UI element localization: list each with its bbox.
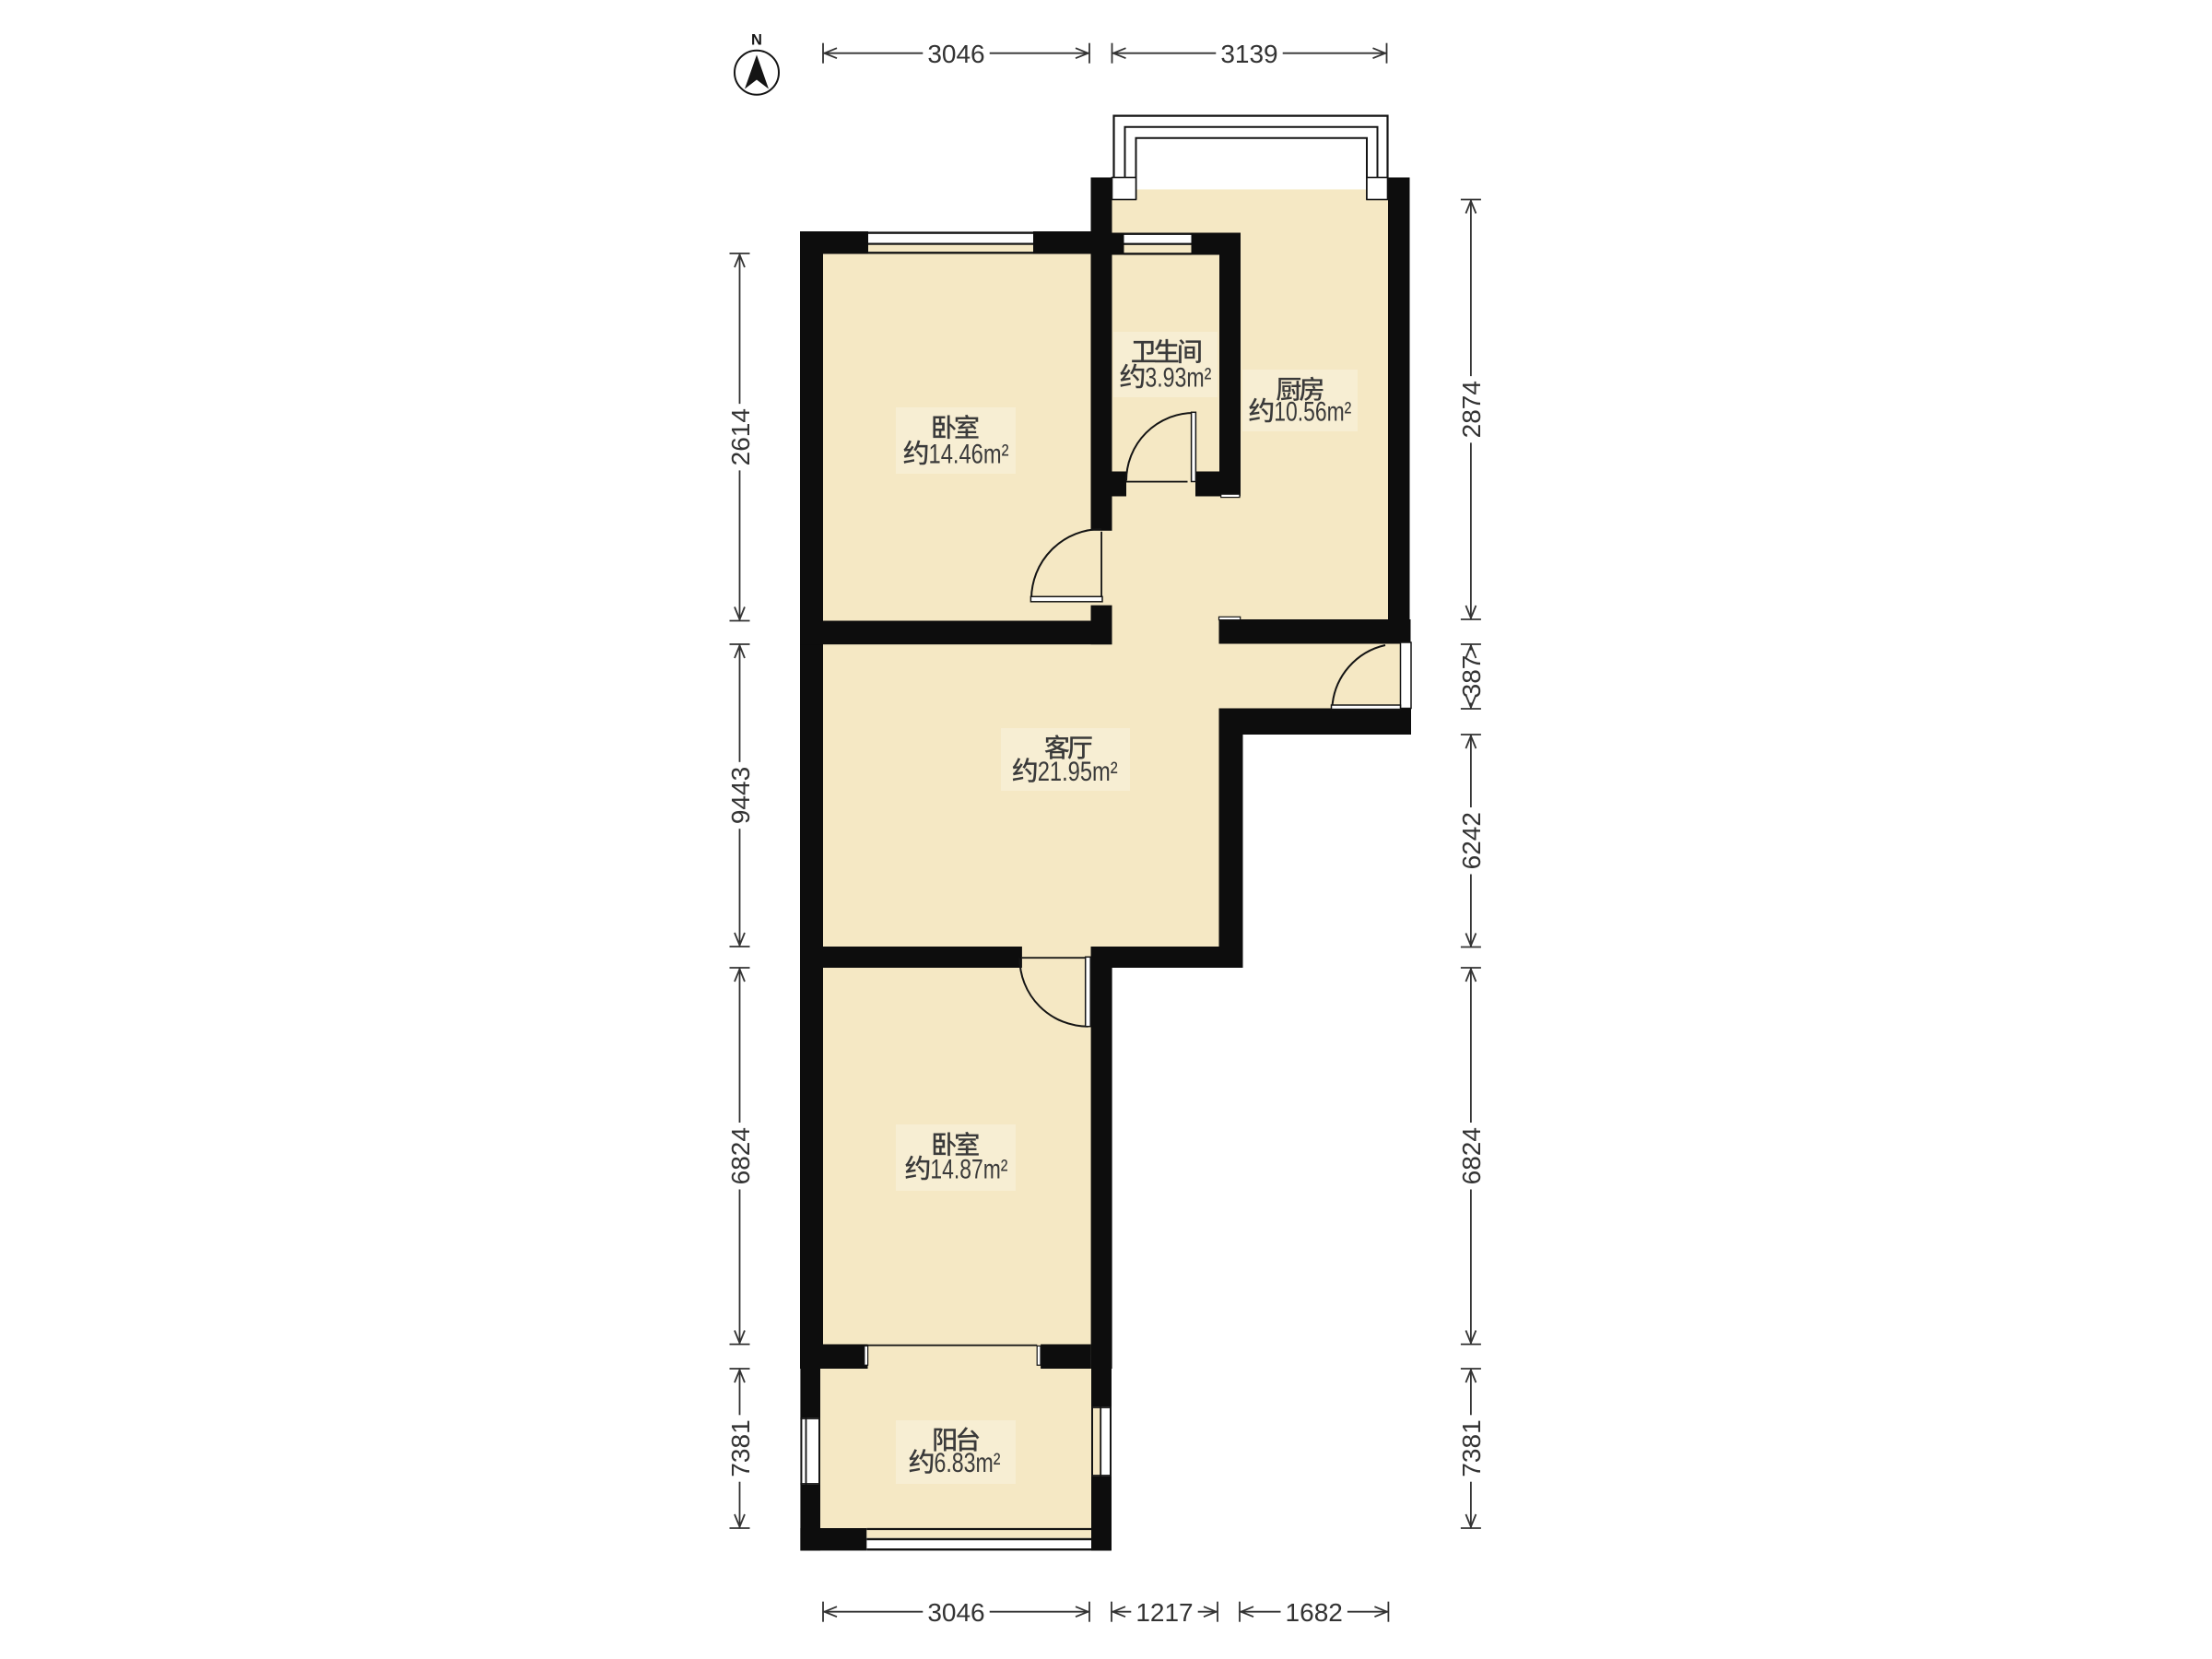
svg-text:7381: 7381: [1457, 1419, 1486, 1477]
svg-text:2614: 2614: [726, 408, 755, 465]
svg-text:9443: 9443: [726, 767, 755, 824]
svg-text:1217: 1217: [1135, 1598, 1193, 1627]
svg-text:3046: 3046: [927, 1598, 984, 1627]
svg-text:6824: 6824: [726, 1127, 755, 1184]
svg-text:6824: 6824: [1457, 1127, 1486, 1184]
svg-text:7381: 7381: [726, 1419, 755, 1477]
svg-text:N: N: [751, 32, 762, 49]
svg-text:3.93m²: 3.93m²: [1145, 363, 1211, 394]
svg-text:387: 387: [1457, 655, 1486, 699]
svg-text:6242: 6242: [1457, 812, 1486, 869]
svg-text:21.95m²: 21.95m²: [1038, 757, 1118, 787]
svg-text:14.46m²: 14.46m²: [929, 440, 1009, 470]
svg-text:6.83m²: 6.83m²: [935, 1448, 1001, 1478]
svg-text:14.87m²: 14.87m²: [930, 1155, 1007, 1185]
svg-text:1682: 1682: [1286, 1598, 1343, 1627]
svg-text:2874: 2874: [1457, 381, 1486, 438]
svg-text:10.56m²: 10.56m²: [1274, 397, 1351, 428]
svg-text:3046: 3046: [927, 40, 984, 68]
svg-text:3139: 3139: [1220, 40, 1277, 68]
